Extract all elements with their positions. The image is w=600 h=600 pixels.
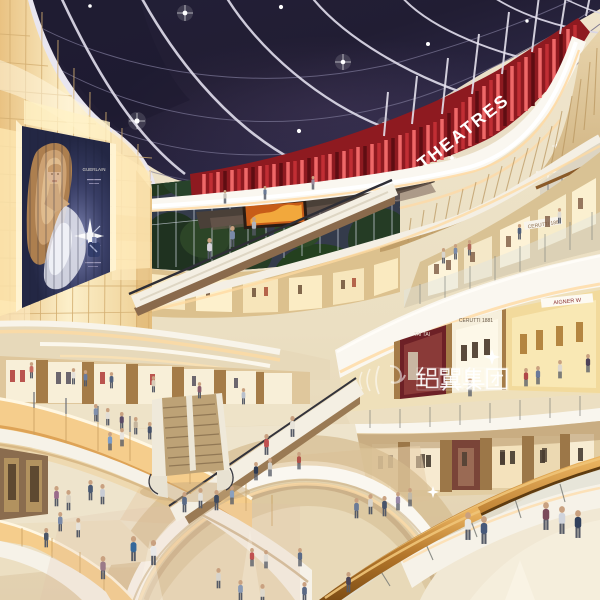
svg-text:CERUTTI 1881: CERUTTI 1881 xyxy=(459,318,493,324)
svg-text:TAI TAI: TAI TAI xyxy=(414,332,430,338)
